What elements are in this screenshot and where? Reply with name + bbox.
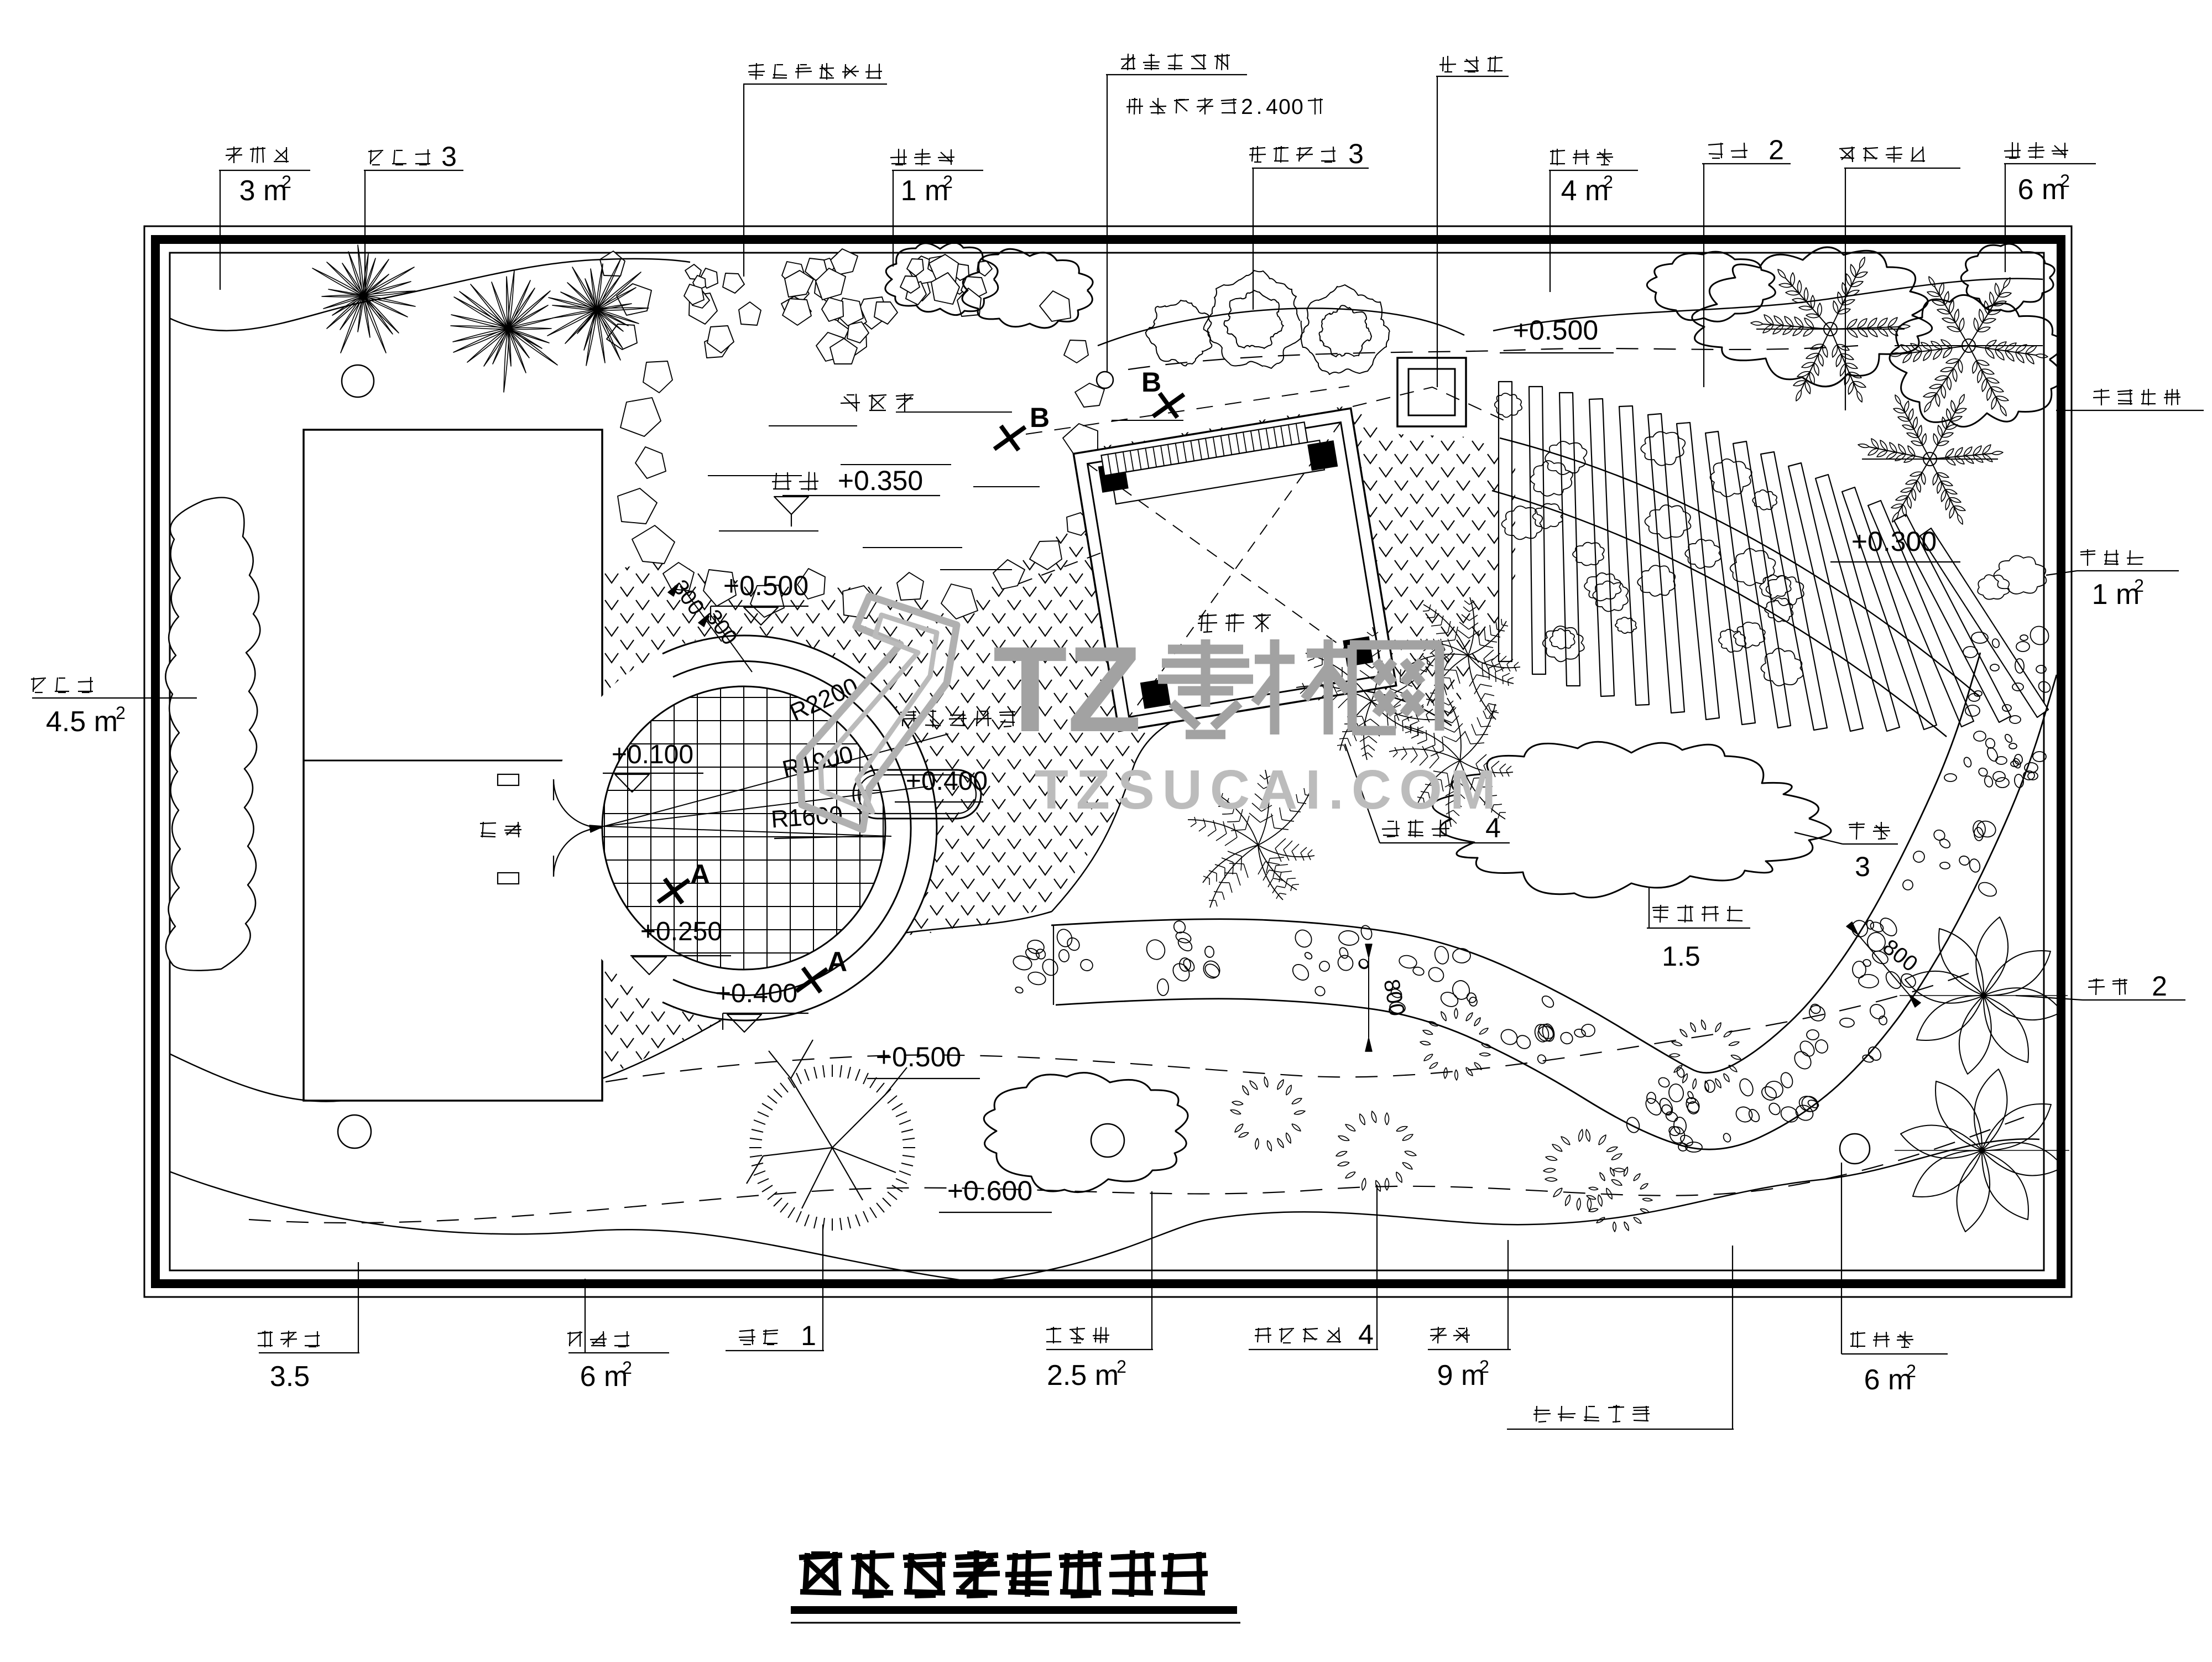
svg-text:4 m: 4 m	[1561, 175, 1609, 207]
svg-text:2: 2	[1479, 1357, 1489, 1377]
svg-text:+0.600: +0.600	[947, 1175, 1032, 1206]
svg-text:2: 2	[943, 172, 953, 192]
svg-text:6 m: 6 m	[580, 1361, 628, 1393]
svg-text:2: 2	[1906, 1361, 1916, 1381]
svg-text:6 m: 6 m	[2018, 174, 2066, 206]
svg-text:2: 2	[1603, 172, 1613, 192]
svg-text:4: 4	[1358, 1319, 1374, 1350]
svg-text:+0.400: +0.400	[906, 767, 988, 796]
svg-text:.: .	[1256, 95, 1262, 119]
svg-text:3 m: 3 m	[239, 175, 288, 207]
svg-text:B: B	[1141, 367, 1161, 398]
svg-text:+0.500: +0.500	[723, 570, 808, 601]
svg-text:2: 2	[1241, 95, 1253, 119]
svg-text:+0.250: +0.250	[640, 917, 722, 946]
svg-text:9 m: 9 m	[1437, 1359, 1485, 1392]
svg-text:2: 2	[116, 703, 126, 723]
svg-text:3: 3	[441, 141, 457, 172]
svg-text:1: 1	[801, 1320, 816, 1351]
svg-text:2: 2	[2060, 171, 2070, 191]
svg-text:+0.500: +0.500	[876, 1041, 961, 1072]
svg-text:B: B	[1030, 402, 1050, 433]
svg-text:3: 3	[1348, 138, 1364, 169]
svg-text:1 m: 1 m	[901, 175, 949, 207]
svg-text:+0.350: +0.350	[838, 465, 923, 496]
svg-text:1.5: 1.5	[1662, 941, 1700, 972]
svg-text:+0.500: +0.500	[1513, 315, 1598, 346]
svg-text:2: 2	[2152, 971, 2167, 1002]
svg-text:0: 0	[1279, 95, 1291, 119]
svg-text:2: 2	[622, 1358, 632, 1378]
svg-text:TZSUCAI.COM: TZSUCAI.COM	[1035, 759, 1504, 821]
svg-text:A: A	[690, 859, 710, 890]
svg-text:+0.300: +0.300	[1851, 526, 1937, 557]
svg-text:+0.400: +0.400	[716, 979, 797, 1008]
svg-text:1 m: 1 m	[2092, 579, 2140, 611]
svg-text:2: 2	[1117, 1357, 1126, 1377]
svg-text:2: 2	[2134, 576, 2144, 596]
svg-text:2: 2	[1768, 134, 1784, 165]
svg-text:+0.100: +0.100	[612, 740, 693, 769]
svg-text:3.5: 3.5	[270, 1361, 310, 1393]
svg-text:TZ: TZ	[993, 621, 1142, 757]
svg-text:2: 2	[281, 172, 291, 192]
svg-text:6 m: 6 m	[1864, 1364, 1912, 1396]
svg-text:0: 0	[1291, 95, 1303, 119]
svg-text:4: 4	[1266, 95, 1278, 119]
svg-text:3: 3	[1855, 851, 1870, 882]
svg-text:A: A	[827, 946, 847, 977]
svg-text:2.5 m: 2.5 m	[1047, 1359, 1119, 1392]
svg-text:4.5 m: 4.5 m	[46, 706, 118, 738]
